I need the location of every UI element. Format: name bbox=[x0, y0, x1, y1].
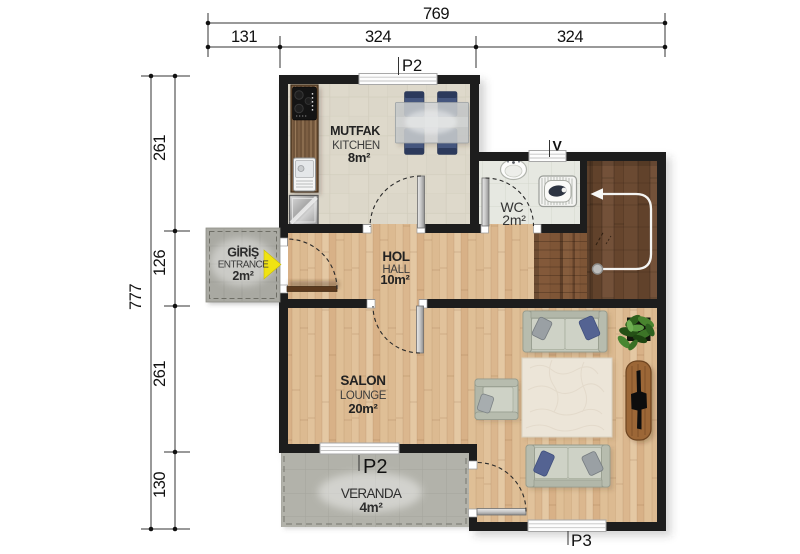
svg-text:324: 324 bbox=[365, 28, 391, 46]
svg-text:VERANDA: VERANDA bbox=[341, 486, 402, 501]
svg-text:261: 261 bbox=[151, 135, 169, 161]
svg-text:769: 769 bbox=[423, 5, 449, 23]
svg-text:MUTFAK: MUTFAK bbox=[330, 124, 380, 138]
svg-text:2m²: 2m² bbox=[502, 212, 526, 228]
svg-text:4m²: 4m² bbox=[359, 500, 383, 515]
svg-text:130: 130 bbox=[151, 472, 169, 498]
svg-text:8m²: 8m² bbox=[348, 150, 371, 165]
svg-text:GİRİŞ: GİRİŞ bbox=[227, 245, 259, 260]
svg-text:10m²: 10m² bbox=[380, 272, 410, 287]
svg-text:324: 324 bbox=[557, 28, 583, 46]
svg-text:HOL: HOL bbox=[382, 249, 409, 264]
svg-text:P2: P2 bbox=[363, 456, 387, 478]
svg-text:SALON: SALON bbox=[340, 373, 385, 388]
svg-text:777: 777 bbox=[127, 284, 145, 310]
svg-text:2m²: 2m² bbox=[232, 269, 253, 283]
svg-text:P3: P3 bbox=[571, 531, 592, 550]
svg-text:P2: P2 bbox=[402, 57, 422, 75]
svg-text:131: 131 bbox=[231, 28, 257, 46]
svg-text:V: V bbox=[553, 138, 563, 154]
svg-text:261: 261 bbox=[151, 361, 169, 387]
svg-text:126: 126 bbox=[151, 250, 169, 276]
svg-text:20m²: 20m² bbox=[348, 401, 378, 416]
